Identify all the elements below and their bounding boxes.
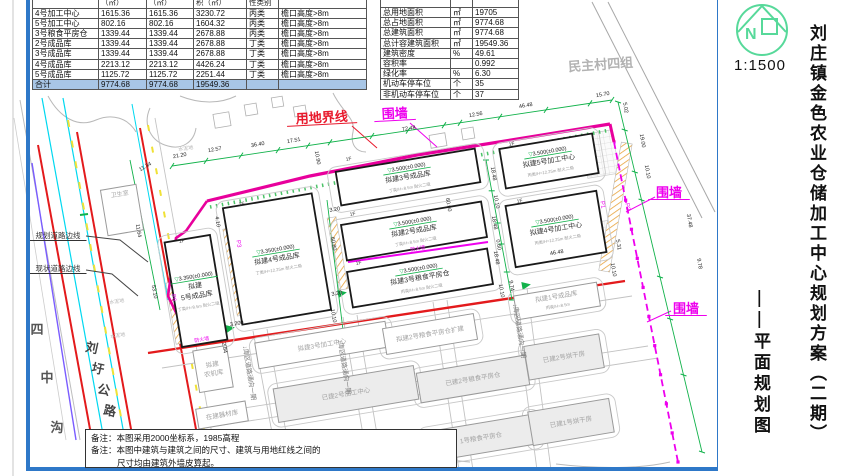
table-cell: 1339.44 [99,29,147,39]
table-cell: 丁类 [247,49,279,59]
table-cell: 802.16 [99,18,147,28]
dimension-value: 18.48 [492,251,500,266]
svg-text:路: 路 [102,402,118,419]
scale-label: 1:1500 [728,57,792,74]
sizhonggou-char: 四 [30,322,43,337]
building-finished-goods-5: ▽3.350(±0.000)拟建5号成品库丁类/H=8.5m 耐火二级 [164,235,229,347]
table-cell: 1339.44 [147,49,194,59]
context-path [556,462,670,468]
northeast-road-line [592,2,702,218]
floor-count-marker: 1F [178,238,185,245]
floor-count-marker: 1F [345,156,352,163]
building-equipment-store: 在建器材库 [196,401,249,429]
dimension-value: 53.10 [150,285,158,300]
table-cell: 19705 [473,8,519,18]
header-cell [451,0,473,8]
building-index-table: （㎡）（㎡）积（㎡）性类别4号加工中心1615.361615.363230.72… [32,0,367,90]
dimension-value: 3.20 [331,290,343,298]
dimension-value: 12.56 [469,111,484,119]
table-cell: 1615.36 [99,8,147,18]
table-total-row: 合计9774.689774.6819549.36 [33,79,367,89]
dimension-value: 5.31 [614,239,622,251]
fence-label-southeast: 围墙 [665,301,707,316]
table-cell: 容积率 [381,58,451,68]
table-cell: 19549.36 [194,79,247,89]
context-structure [271,96,283,108]
svg-text:围墙: 围墙 [381,105,408,121]
table-cell: ㎡ [451,28,473,38]
fence-label-top: 围墙 [374,105,416,121]
svg-text:围墙: 围墙 [656,185,682,200]
header-cell: 性类别 [247,0,279,8]
table-cell: % [451,48,473,58]
svg-text:规划道路边线: 规划道路边线 [36,230,81,240]
cement-ground-label: 水泥地 [178,144,194,153]
table-cell: 3230.72 [194,8,247,18]
table-row: 总占地面积㎡9774.68 [381,18,519,28]
table-cell: 建筑密度 [381,48,451,58]
table-cell [247,79,279,89]
table-cell: 1125.72 [147,69,194,79]
table-cell: 0.992 [473,58,519,68]
table-row: 3号成品库1339.441339.442678.88丁类檐口高度>8m [33,49,367,59]
table-cell: 丙类 [247,8,279,18]
table-cell: ㎡ [451,18,473,28]
fence-post [653,344,656,347]
dimension-value: 15.70 [596,91,611,99]
dimension-value: 19.00 [638,134,646,149]
floor-count-marker: 1F [349,211,356,218]
dimension-value: 17.51 [287,137,302,145]
svg-text:现状道路边线: 现状道路边线 [36,263,81,273]
header-cell: 积（㎡） [194,0,247,8]
table-cell: ㎡ [451,8,473,18]
table-row: 容积率0.992 [381,58,519,68]
building-grain-warehouse-2-ext: 拟建2号粮食平房仓扩建 [382,314,477,355]
table-cell: 2213.12 [99,59,147,69]
table-header-row [381,0,519,8]
dimension-value: 60.80 [329,237,337,252]
table-row: 5号成品库1125.721125.722251.44丁类檐口高度>8m [33,69,367,79]
purple-utility-line [32,163,76,440]
table-cell: 4号成品库 [33,59,99,69]
cement-ground-label: 水泥地 [110,331,126,340]
svg-text:水泥地: 水泥地 [178,144,194,153]
svg-text:围墙: 围墙 [673,301,699,316]
table-cell: 丙类 [247,29,279,39]
dimension-value: 9.78 [695,258,703,270]
table-cell: 9774.68 [473,18,519,28]
dimension-value: 37.48 [685,214,693,229]
dimension-value: 11.64 [134,224,142,238]
svg-text:沟: 沟 [50,420,63,435]
table-cell [451,58,473,68]
table-cell: 3号粮食平房仓 [33,29,99,39]
table-row: 5号加工中心802.16802.161604.32丙类檐口高度>8m [33,18,367,28]
dimension-value: 10.10 [643,165,651,180]
table-cell: 19549.36 [473,38,519,48]
dimension-value: 3.20 [329,206,341,214]
drawing-sheet: ▽3.500(±0.000)拟建3号成品库丁类/H=8.5m 耐火二级▽3.50… [0,0,842,476]
table-cell: 1125.72 [99,69,147,79]
svg-text:公: 公 [96,382,112,398]
table-cell [279,79,367,89]
building-dryer-2: 已建2号烘干房 [524,334,605,380]
table-cell: 檐口高度>8m [279,39,367,49]
note-line: 备注：本图采用2000坐标系，1985高程 [91,432,451,444]
table-row: 4号成品库2213.122213.124426.24丁类檐口高度>8m [33,59,367,69]
table-cell: 绿化率 [381,69,451,79]
table-cell: 檐口高度>8m [279,49,367,59]
floor-count-marker: 1F [238,201,245,208]
context-structure [213,112,231,128]
dimension-value: 36.40 [251,141,266,149]
north-compass-icon: N [732,2,794,58]
dimension-value: 4.10 [213,216,221,228]
table-cell: ㎡ [451,38,473,48]
notes-box: 备注：本图采用2000坐标系，1985高程 备注：本图中建筑与建筑之间的尺寸、建… [85,429,457,468]
floor-count-marker: 1F [516,198,523,205]
title-block: N 1:1500 刘庄镇金色农业仓储加工中心规划方案（二期） ——平面规划图 [718,0,842,476]
building-grain-warehouse-2-built: 已建2号粮食平房仓 [416,355,529,403]
compass-north-letter: N [745,26,757,43]
svg-text:中: 中 [40,370,53,385]
dimension-value: 46.48 [519,102,534,110]
dimension-value: 10.90 [313,151,321,166]
svg-text:水泥地: 水泥地 [110,331,126,340]
table-cell: 1339.44 [147,29,194,39]
table-cell: 2251.44 [194,69,247,79]
table-cell: 檐口高度>8m [279,29,367,39]
context-path [48,96,136,132]
table-cell: 4426.24 [194,59,247,69]
header-cell: （㎡） [99,0,147,8]
table-row: 机动车停车位个35 [381,79,519,89]
dimension-value: 3.200 [230,320,245,328]
liuwei-road-char: 刘 [84,339,99,356]
table-cell: 总用地面积 [381,8,451,18]
table-cell: 9774.68 [473,28,519,38]
table-cell: 合计 [33,79,99,89]
dimension-value: 72.48 [402,125,416,133]
liuwei-road-char: 公 [96,382,112,398]
liuwei-road-char: 圩 [90,361,106,377]
dimension-value: 10.10 [329,309,337,324]
table-cell: 檐口高度>8m [279,8,367,18]
sizhonggou-char: 中 [40,370,53,385]
table-cell: 1339.44 [147,39,194,49]
cement-ground-label: 水泥地 [109,297,125,306]
table-cell: 1339.44 [99,39,147,49]
table-cell: 檐口高度>8m [279,18,367,28]
table-cell: 5号成品库 [33,69,99,79]
sizhonggou-char: 沟 [50,420,63,435]
note-line: 备注：本图中建筑与建筑之间的尺寸、建筑与用地红线之间的 尺寸均由建筑外墙皮算起。 [91,444,451,469]
context-path [180,96,236,102]
table-cell: 总占地面积 [381,18,451,28]
table-cell: 机动车停车位 [381,79,451,89]
existing-road-edge-label: 现状道路边线 [30,263,87,274]
header-cell [381,0,451,8]
table-cell: 802.16 [147,18,194,28]
liuwei-road-char: 路 [102,402,118,419]
table-row: 绿化率%6.30 [381,69,519,79]
table-cell: 个 [451,89,473,99]
dimension-value: 10.10 [609,263,617,278]
context-structure [244,103,258,116]
context-path [147,108,196,147]
dimension-value: 10.10 [492,195,500,210]
table-cell: 1615.36 [147,8,194,18]
svg-text:圩: 圩 [90,361,106,377]
table-cell: 49.61 [473,48,519,58]
table-row: 建筑密度%49.61 [381,48,519,58]
building-processing-5: ▽3.500(±0.000)拟建5号加工中心丙类/H=12.25m 耐火二级 [499,134,598,189]
table-row: 2号成品库1339.441339.442678.88丁类檐口高度>8m [33,39,367,49]
dimension-value: 18.48 [489,167,497,182]
table-cell: % [451,69,473,79]
buildings: ▽3.500(±0.000)拟建3号成品库丁类/H=8.5m 耐火二级▽3.50… [100,134,614,463]
site-boundary-label: 用地界线 [287,109,357,127]
table-cell: 檐口高度>8m [279,59,367,69]
dimension-value: 10.10 [497,284,505,299]
context-structure [461,127,475,140]
building-finished-goods-4: ▽3.350(±0.000)拟建4号成品库丁类/H=12.25m 耐火二级 [223,193,331,324]
table-cell: 9774.68 [99,79,147,89]
table-cell: 2678.88 [194,29,247,39]
svg-text:民主村四组: 民主村四组 [568,55,634,74]
table-cell: 2213.12 [147,59,194,69]
table-cell: 1339.44 [99,49,147,59]
table-cell: 5号加工中心 [33,18,99,28]
table-cell: 2号成品库 [33,39,99,49]
svg-text:四: 四 [30,322,43,337]
road-redline-1 [38,145,92,440]
table-cell: 35 [473,79,519,89]
dimension-value: 21.20 [173,152,188,160]
drawing-subtitle: ——平面规划图 [748,290,773,470]
context-structure [429,133,447,148]
table-cell: 檐口高度>8m [279,69,367,79]
table-cell: 1604.32 [194,18,247,28]
frame-left-blue [26,0,30,470]
table-cell: 非机动车停车位 [381,89,451,99]
drawing-title: 刘庄镇金色农业仓储加工中心规划方案（二期） [804,24,829,470]
svg-text:刘: 刘 [84,339,99,356]
table-cell: 2678.88 [194,39,247,49]
site-statistics-table: 总用地面积㎡19705总占地面积㎡9774.68总建筑面积㎡9774.68总计容… [380,0,519,100]
table-cell: 3号成品库 [33,49,99,59]
table-row: 非机动车停车位个37 [381,89,519,99]
building-finished-goods-1: 拟建1号成品库丙类/H=8.5m [514,282,601,320]
table-row: 总用地面积㎡19705 [381,8,519,18]
table-cell: 4号加工中心 [33,8,99,18]
green-survey-mark [80,214,88,215]
dimension-value: 5.02 [621,102,629,114]
table-header-row: （㎡）（㎡）积（㎡）性类别 [33,0,367,8]
header-cell [279,0,367,8]
table-row: 总计容建筑面积㎡19549.36 [381,38,519,48]
table-cell: 个 [451,79,473,89]
dimension-value: 0.60 [494,239,502,251]
table-cell: 丁类 [247,59,279,69]
header-cell: （㎡） [147,0,194,8]
table-cell: 丙类 [247,18,279,28]
table-cell: 总计容建筑面积 [381,38,451,48]
header-cell [473,0,519,8]
svg-text:水泥地: 水泥地 [109,297,125,306]
floor-count-marker: 1F [355,260,362,267]
village-group-label: 民主村四组 [568,55,634,74]
table-cell: 6.30 [473,69,519,79]
table-row: 4号加工中心1615.361615.363230.72丙类檐口高度>8m [33,8,367,18]
table-cell: 总建筑面积 [381,28,451,38]
table-row: 总建筑面积㎡9774.68 [381,28,519,38]
table-cell: 9774.68 [147,79,194,89]
building-dryer-1: 已建1号烘干房 [528,398,614,445]
floor-count-marker: 1F [508,141,515,148]
dimension-value: 11.34 [138,161,153,173]
header-cell [33,0,99,8]
dimension-value: 9.74 [507,280,515,292]
table-row: 3号粮食平房仓1339.441339.442678.88丙类檐口高度>8m [33,29,367,39]
dimension-value: 12.57 [208,146,223,154]
dimension-value: 18.48 [490,216,498,231]
table-cell: 37 [473,89,519,99]
planned-road-edge-label: 规划道路边线 [30,230,87,241]
fence-post [636,257,639,260]
table-cell: 2678.88 [194,49,247,59]
building-processing-3: 拟建3号加工中心 [255,321,389,368]
table-cell: 丁类 [247,39,279,49]
table-cell: 丁类 [247,69,279,79]
